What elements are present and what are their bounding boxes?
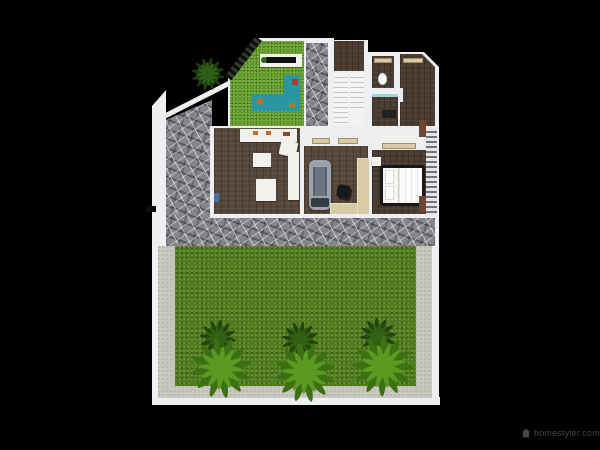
sofa-cushion — [253, 131, 258, 135]
pillow — [385, 186, 394, 200]
sofa-cushion — [266, 131, 271, 135]
concrete-path-left — [158, 246, 175, 398]
stair-flight-right — [350, 73, 364, 111]
coffee-table-large — [256, 179, 276, 201]
watermark: homestyler.com — [522, 428, 600, 438]
hall-stone-wall — [306, 43, 328, 126]
tv-screen — [266, 57, 296, 63]
ac-vent — [338, 138, 358, 144]
wood-post — [419, 196, 426, 212]
vanity — [382, 110, 396, 118]
sideboard — [288, 152, 299, 200]
sofa-cushion — [256, 98, 263, 104]
treadmill-console — [311, 198, 329, 207]
coffee-table-small — [253, 153, 271, 167]
ac-vent — [312, 138, 330, 144]
louver-pergola — [426, 128, 437, 215]
sofa-throw — [283, 132, 290, 136]
palm-front — [183, 330, 259, 406]
sofa-cushion — [289, 103, 295, 108]
bathroom-2-floor — [372, 94, 398, 126]
sofa-pillow — [292, 79, 298, 85]
bedroom-bench — [372, 157, 381, 166]
room-door — [400, 88, 403, 102]
ac-vent — [403, 58, 423, 63]
office-chair — [336, 184, 351, 199]
treadmill — [309, 160, 331, 210]
wood-post — [419, 120, 426, 137]
ac-vent — [374, 58, 392, 63]
terrace-stone — [166, 214, 435, 246]
watermark-text: homestyler.com — [534, 428, 600, 438]
floorplan-render: homestyler.com — [0, 0, 600, 450]
console-plant — [261, 57, 267, 63]
wall-decor-blue — [214, 193, 219, 202]
gate-handle — [146, 206, 156, 212]
stair-landing-bottom — [350, 111, 364, 125]
toilet — [378, 73, 387, 85]
stair-flight-left — [334, 73, 348, 125]
homestyler-logo-icon — [522, 429, 530, 438]
stair-hall — [332, 41, 366, 126]
bathroom-1-floor — [372, 56, 394, 88]
top-right-room-floor — [400, 54, 435, 126]
pillow — [385, 170, 394, 184]
desk-right — [357, 158, 369, 214]
front-yard-tree — [187, 53, 230, 96]
ac-vent — [382, 143, 416, 149]
stair-landing-top — [334, 41, 364, 71]
treadmill-belt — [313, 167, 327, 196]
shower-glass — [372, 94, 398, 97]
